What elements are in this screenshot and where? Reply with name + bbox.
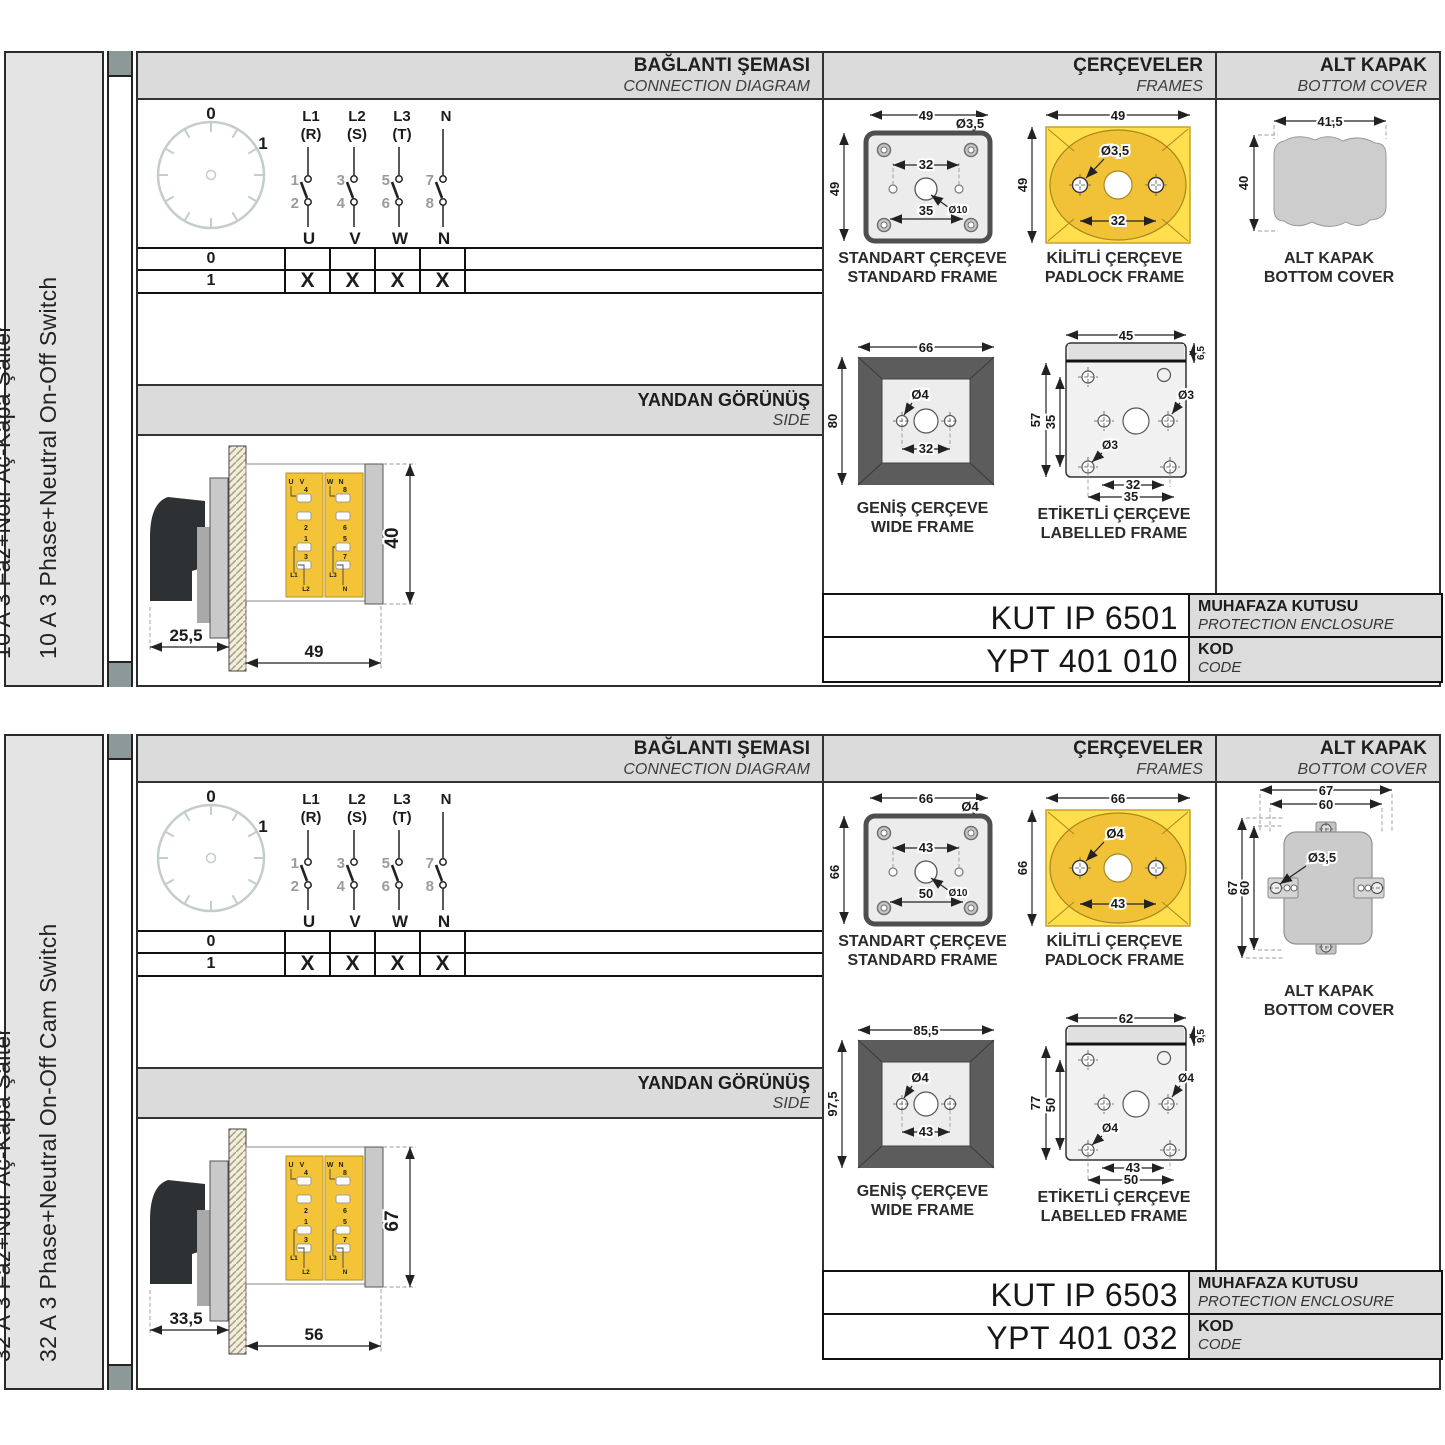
svg-text:N: N [343,1269,348,1276]
enclosure-row: KUT IP 6503 MUHAFAZA KUTUSU PROTECTION E… [824,1272,1441,1315]
connection-header: BAĞLANTI ŞEMASI CONNECTION DIAGRAM [138,53,822,100]
svg-text:4: 4 [304,1170,308,1177]
svg-text:49: 49 [919,108,933,123]
table-cell-empty [376,249,421,269]
svg-text:5: 5 [382,172,390,189]
svg-text:W: W [327,1162,334,1169]
labelled-frame-caption: ETİKETLİ ÇERÇEVE LABELLED FRAME [1014,1188,1214,1226]
contact-diagram-drawing: L1 (R) 1 2 U L2 (S) 3 4 [288,105,638,247]
table-row: 1 X X X X [138,954,822,977]
side-view-header: YANDAN GÖRÜNÜŞ SIDE [138,384,822,436]
connection-header-tr: BAĞLANTI ŞEMASI [138,55,810,77]
svg-text:67: 67 [1319,783,1333,798]
svg-text:L1: L1 [302,108,320,125]
svg-text:1: 1 [291,172,299,189]
svg-text:41,5: 41,5 [1317,114,1342,129]
contact-column-4: N 7 8 N [426,108,452,248]
terminal-block: U V W N 4 8 2 6 1 5 3 7 L1 [286,1156,363,1280]
svg-text:8: 8 [426,878,434,895]
frames-header-en: FRAMES [824,77,1203,96]
svg-text:6,5: 6,5 [1196,346,1207,360]
code-table: KUT IP 6503 MUHAFAZA KUTUSU PROTECTION E… [822,1270,1443,1360]
svg-text:Ø4: Ø4 [961,799,979,814]
wide-frame-drawing: 66 80 Ø4 32 [830,337,1015,495]
svg-text:L1: L1 [302,791,320,808]
rotary-dial-drawing: 0 1 [146,105,281,247]
dim-width: 49 [305,642,324,661]
contact-column-4: N 7 8 N [426,791,452,931]
column-divider [1215,100,1217,593]
wide-frame-caption: GENİŞ ÇERÇEVE WIDE FRAME [830,1182,1015,1220]
svg-text:Ø10: Ø10 [949,205,968,216]
datasheet-panel: BAĞLANTI ŞEMASI CONNECTION DIAGRAM ÇERÇE… [136,51,1441,687]
svg-text:2: 2 [291,195,299,212]
svg-text:(S): (S) [347,126,367,143]
contact-diagram-drawing: L1 (R) 1 2 U L2 (S) 3 4 [288,788,638,930]
svg-text:Ø3,5: Ø3,5 [956,116,984,131]
table-row: 0 [138,247,822,271]
svg-text:L2: L2 [302,586,310,593]
svg-text:Ø4: Ø4 [1178,1071,1194,1085]
row-label: 1 [138,954,286,975]
svg-text:7: 7 [426,172,434,189]
svg-text:8: 8 [343,1170,347,1177]
table-row: 0 [138,930,822,954]
spine-marker-top [109,734,131,760]
svg-text:6: 6 [343,525,347,532]
svg-text:35: 35 [1043,415,1058,429]
svg-text:W: W [392,912,409,931]
frames-header-tr: ÇERÇEVELER [824,55,1203,77]
cover-outline [1274,137,1386,227]
wide-frame-drawing: 85,5 97,5 Ø4 43 [830,1020,1015,1178]
svg-text:1: 1 [258,817,267,836]
svg-text:(R): (R) [301,809,322,826]
contact-column-3: L3 (T) 5 6 W [382,108,412,248]
enclosure-label: MUHAFAZA KUTUSU PROTECTION ENCLOSURE [1188,1272,1441,1313]
product-code: YPT 401 032 [824,1315,1188,1358]
svg-text:Ø3,5: Ø3,5 [1308,850,1336,865]
svg-text:66: 66 [1015,861,1030,875]
svg-text:66: 66 [919,340,933,355]
svg-text:3: 3 [337,855,345,872]
svg-text:N: N [441,791,452,808]
contact-column-1: L1 (R) 1 2 U [291,791,322,931]
table-cell-empty [421,932,466,952]
svg-text:2: 2 [304,525,308,532]
svg-text:6: 6 [343,1208,347,1215]
svg-text:49: 49 [1111,108,1125,123]
svg-text:32: 32 [919,441,933,456]
spine-marker-bottom [109,661,131,687]
code-row: YPT 401 010 KOD CODE [824,638,1441,681]
side-view-drawing: U V W N 4 8 2 6 1 5 3 7 L1 [138,1124,822,1364]
table-cell-filler [466,249,822,269]
row-label: 1 [138,271,286,292]
svg-text:L1: L1 [290,1255,298,1262]
cover-header: ALT KAPAK BOTTOM COVER [1215,53,1439,100]
padlock-frame-drawing: 66 66 Ø4 43 [1022,786,1207,932]
spine-marker-top [109,51,131,77]
svg-text:8: 8 [426,195,434,212]
padlock-frame-drawing: 49 49 Ø3,5 32 [1022,103,1207,249]
cover-header-en: BOTTOM COVER [1217,77,1427,96]
svg-text:N: N [441,108,452,125]
svg-text:L3: L3 [329,572,337,579]
svg-text:35: 35 [1124,489,1138,504]
svg-text:V: V [349,912,361,931]
code-table: KUT IP 6501 MUHAFAZA KUTUSU PROTECTION E… [822,593,1443,683]
svg-text:77: 77 [1028,1096,1043,1110]
svg-text:Ø3: Ø3 [1102,438,1118,452]
table-cell-mark: X [331,271,376,292]
rotary-dial-drawing: 0 1 [146,788,281,930]
table-cell-empty [286,932,331,952]
cover-header-tr: ALT KAPAK [1217,55,1427,77]
svg-text:45: 45 [1119,328,1133,343]
truth-table: 0 1 X X X X [138,247,822,294]
svg-text:(S): (S) [347,809,367,826]
svg-text:5: 5 [382,855,390,872]
svg-text:6: 6 [382,195,390,212]
svg-text:1: 1 [291,855,299,872]
svg-text:50: 50 [1043,1098,1058,1112]
svg-text:U: U [288,479,293,486]
spine-marker-bottom [109,1364,131,1390]
table-cell-mark: X [421,954,466,975]
svg-text:4: 4 [337,195,346,212]
product-name-en: 32 A 3 Phase+Neutral On-Off Cam Switch [35,923,62,1362]
table-cell-filler [466,932,822,952]
switch-handle [150,1180,205,1284]
frames-header: ÇERÇEVELER FRAMES [822,53,1215,100]
svg-text:7: 7 [343,554,347,561]
svg-text:N: N [343,586,348,593]
code-label: KOD CODE [1188,1315,1441,1358]
svg-text:V: V [300,1162,305,1169]
enclosure-code: KUT IP 6501 [824,595,1188,636]
svg-text:60: 60 [1237,881,1252,895]
svg-text:0: 0 [206,787,215,806]
svg-text:3: 3 [337,172,345,189]
table-cell-mark: X [331,954,376,975]
standard-frame-drawing: 49 Ø3,5 49 32 Ø10 35 [830,103,1015,249]
standard-frame-caption: STANDART ÇERÇEVE STANDARD FRAME [830,249,1015,287]
labelled-frame-drawing: 45 6,5 57 35 Ø3 Ø3 [1014,325,1214,503]
datasheet-panel: BAĞLANTI ŞEMASI CONNECTION DIAGRAM ÇERÇE… [136,734,1441,1390]
svg-text:57: 57 [1028,413,1043,427]
column-divider [1215,783,1217,1270]
dim-height: 40 [382,527,403,548]
product-label-box: 32 A 3 Faz+Nötr Aç-Kapa Şalter 32 A 3 Ph… [4,734,104,1390]
product-label-box: 10 A 3 Faz+Nötr Aç-Kapa Şalter 10 A 3 Ph… [4,51,104,687]
column-divider [822,100,824,593]
svg-text:Ø4: Ø4 [1102,1121,1118,1135]
svg-text:U: U [288,1162,293,1169]
wide-frame-caption: GENİŞ ÇERÇEVE WIDE FRAME [830,499,1015,537]
table-cell-mark: X [286,271,331,292]
svg-text:L2: L2 [348,108,366,125]
svg-text:V: V [349,229,361,248]
contact-column-2: L2 (S) 3 4 V [337,108,367,248]
svg-text:80: 80 [825,414,840,428]
padlock-frame-caption: KİLİTLİ ÇERÇEVE PADLOCK FRAME [1022,932,1207,970]
svg-text:40: 40 [1236,176,1251,190]
terminal-block: U V W N 4 8 2 6 1 5 3 7 L1 [286,473,363,597]
svg-text:33,5: 33,5 [169,1309,202,1328]
svg-text:V: V [300,479,305,486]
bottom-cover-drawing: 41,5 40 [1238,109,1408,244]
table-cell-filler [466,954,822,975]
svg-text:6: 6 [382,878,390,895]
svg-text:50: 50 [919,886,933,901]
svg-text:L2: L2 [302,1269,310,1276]
svg-text:U: U [303,229,315,248]
svg-text:(R): (R) [301,126,322,143]
svg-text:7: 7 [426,855,434,872]
svg-text:35: 35 [919,203,933,218]
dim-handle: 25,5 [169,626,202,645]
labelled-frame-caption: ETİKETLİ ÇERÇEVE LABELLED FRAME [1014,505,1214,543]
svg-text:43: 43 [1111,896,1125,911]
svg-text:85,5: 85,5 [913,1023,938,1038]
svg-text:50: 50 [1124,1172,1138,1187]
dial-position-1: 1 [258,134,267,153]
svg-text:L1: L1 [290,572,298,579]
enclosure-code: KUT IP 6503 [824,1272,1188,1313]
svg-text:L3: L3 [393,791,411,808]
svg-text:4: 4 [337,878,346,895]
contact-column-2: L2 (S) 3 4 V [337,791,367,931]
truth-table: 0 1 X X X X [138,930,822,977]
side-view-drawing: U V W N 4 8 2 6 1 5 3 7 L1 [138,441,822,681]
svg-text:3: 3 [304,1237,308,1244]
svg-text:66: 66 [1111,791,1125,806]
svg-text:60: 60 [1319,797,1333,812]
svg-text:66: 66 [919,791,933,806]
cover-header: ALT KAPAK BOTTOM COVER [1215,736,1439,783]
svg-text:8: 8 [343,487,347,494]
svg-text:Ø4: Ø4 [911,1070,929,1085]
product-name-en: 10 A 3 Phase+Neutral On-Off Switch [35,277,62,659]
svg-text:56: 56 [305,1325,324,1344]
svg-text:32: 32 [1111,213,1125,228]
svg-text:U: U [303,912,315,931]
table-cell-mark: X [376,954,421,975]
svg-text:Ø10: Ø10 [949,888,968,899]
row-label: 0 [138,249,286,269]
svg-text:49: 49 [1015,178,1030,192]
table-cell-empty [421,249,466,269]
contact-column-1: L1 (R) 1 2 U [291,108,322,248]
product-name-tr: 10 A 3 Faz+Nötr Aç-Kapa Şalter [0,325,16,659]
svg-text:2: 2 [291,878,299,895]
switch-handle [150,497,205,601]
table-cell-filler [466,271,822,292]
table-cell-empty [331,932,376,952]
standard-frame-drawing: 66 Ø4 66 43 Ø10 50 [830,786,1015,932]
svg-text:3: 3 [304,554,308,561]
column-divider [822,783,824,1270]
svg-text:N: N [438,912,450,931]
svg-text:Ø4: Ø4 [911,387,929,402]
svg-text:2: 2 [304,1208,308,1215]
svg-text:L2: L2 [348,791,366,808]
table-cell-mark: X [421,271,466,292]
svg-text:67: 67 [382,1210,403,1231]
svg-text:5: 5 [343,1219,347,1226]
labelled-frame-drawing: 62 9,5 77 50 Ø4 Ø4 [1014,1008,1214,1186]
svg-text:L3: L3 [329,1255,337,1262]
svg-text:N: N [338,479,343,486]
svg-text:66: 66 [827,865,842,879]
product-code: YPT 401 010 [824,638,1188,681]
svg-text:N: N [438,229,450,248]
svg-text:4: 4 [304,487,308,494]
table-row: 1 X X X X [138,271,822,294]
enclosure-label: MUHAFAZA KUTUSU PROTECTION ENCLOSURE [1188,595,1441,636]
padlock-frame-caption: KİLİTLİ ÇERÇEVE PADLOCK FRAME [1022,249,1207,287]
svg-text:1: 1 [304,1219,308,1226]
catalog-page: 10 A 3 Faz+Nötr Aç-Kapa Şalter 10 A 3 Ph… [0,0,1445,1445]
bottom-cover-caption: ALT KAPAK BOTTOM COVER [1215,982,1443,1020]
frames-header: ÇERÇEVELER FRAMES [822,736,1215,783]
svg-text:62: 62 [1119,1011,1133,1026]
svg-text:N: N [338,1162,343,1169]
code-label: KOD CODE [1188,638,1441,681]
svg-text:1: 1 [304,536,308,543]
svg-text:W: W [327,479,334,486]
side-header-tr: YANDAN GÖRÜNÜŞ [138,389,810,411]
code-row: YPT 401 032 KOD CODE [824,1315,1441,1358]
svg-text:97,5: 97,5 [825,1091,840,1116]
svg-text:5: 5 [343,536,347,543]
svg-text:7: 7 [343,1237,347,1244]
table-cell-mark: X [286,954,331,975]
connection-header: BAĞLANTI ŞEMASI CONNECTION DIAGRAM [138,736,822,783]
table-cell-mark: X [376,271,421,292]
svg-text:Ø3,5: Ø3,5 [1101,143,1129,158]
svg-text:L3: L3 [393,108,411,125]
bottom-cover-drawing: 67 60 67 60 Ø3,5 [1230,780,1420,980]
binder-spine [107,734,133,1390]
side-view-header: YANDAN GÖRÜNÜŞ SIDE [138,1067,822,1119]
svg-text:43: 43 [919,840,933,855]
table-cell-empty [331,249,376,269]
svg-text:(T): (T) [392,809,411,826]
svg-text:32: 32 [919,157,933,172]
connection-header-en: CONNECTION DIAGRAM [138,77,810,96]
side-header-en: SIDE [138,411,810,430]
product-name-tr: 32 A 3 Faz+Nötr Aç-Kapa Şalter [0,1028,16,1362]
standard-frame-caption: STANDART ÇERÇEVE STANDARD FRAME [830,932,1015,970]
svg-text:43: 43 [919,1124,933,1139]
binder-spine [107,51,133,687]
svg-text:Ø3: Ø3 [1178,388,1194,402]
svg-text:W: W [392,229,409,248]
svg-text:49: 49 [827,182,842,196]
svg-text:Ø4: Ø4 [1106,826,1124,841]
product-section-32a: 32 A 3 Faz+Nötr Aç-Kapa Şalter 32 A 3 Ph… [0,734,1445,1390]
table-cell-empty [376,932,421,952]
row-label: 0 [138,932,286,952]
bottom-cover-caption: ALT KAPAK BOTTOM COVER [1215,249,1443,287]
svg-text:(T): (T) [392,126,411,143]
table-cell-empty [286,249,331,269]
enclosure-row: KUT IP 6501 MUHAFAZA KUTUSU PROTECTION E… [824,595,1441,638]
dial-position-0: 0 [206,104,215,123]
product-section-10a: 10 A 3 Faz+Nötr Aç-Kapa Şalter 10 A 3 Ph… [0,51,1445,687]
svg-text:9,5: 9,5 [1196,1029,1207,1043]
contact-column-3: L3 (T) 5 6 W [382,791,412,931]
